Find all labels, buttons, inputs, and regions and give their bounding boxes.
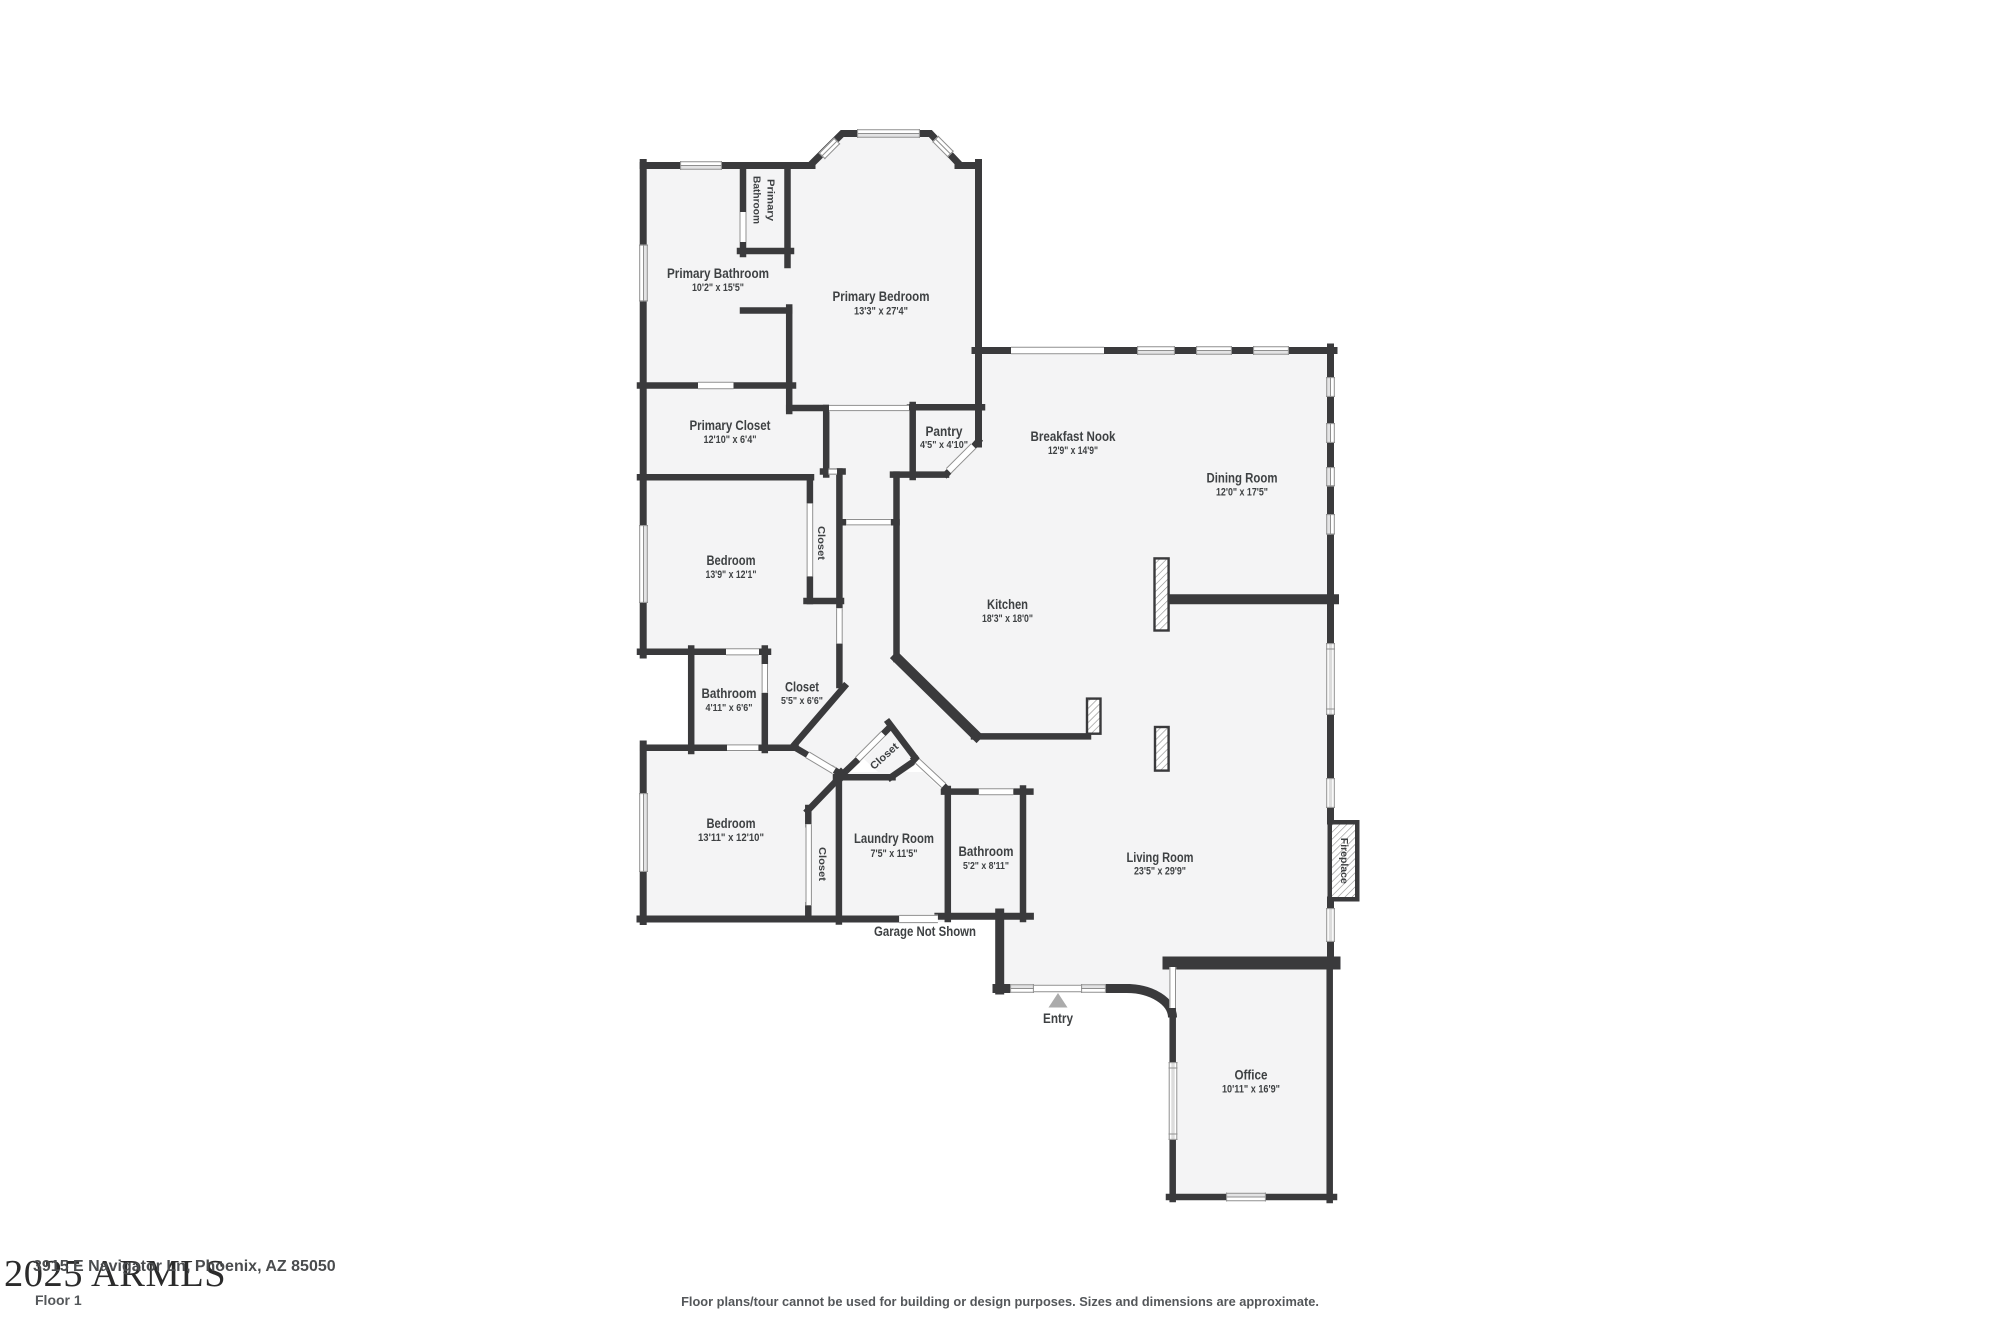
svg-text:10'2" x 15'5": 10'2" x 15'5": [692, 282, 744, 294]
svg-text:3915 E Navigator Ln, Phoenix,: 3915 E Navigator Ln, Phoenix, AZ 85050: [33, 1258, 336, 1275]
svg-text:23'5" x 29'9": 23'5" x 29'9": [1134, 866, 1186, 878]
svg-text:7'5" x 11'5": 7'5" x 11'5": [871, 848, 918, 860]
svg-text:Floor 1: Floor 1: [35, 1292, 82, 1308]
svg-text:18'3" x 18'0": 18'3" x 18'0": [982, 613, 1033, 625]
svg-text:10'11" x 16'9": 10'11" x 16'9": [1222, 1084, 1280, 1096]
svg-text:Garage Not Shown: Garage Not Shown: [874, 924, 976, 939]
svg-text:Office: Office: [1235, 1068, 1268, 1083]
svg-text:Dining Room: Dining Room: [1207, 471, 1278, 486]
svg-text:Entry: Entry: [1043, 1011, 1073, 1026]
svg-text:Primary Bathroom: Primary Bathroom: [667, 266, 769, 281]
svg-text:Bedroom: Bedroom: [707, 816, 756, 831]
svg-text:4'5" x 4'10": 4'5" x 4'10": [920, 440, 968, 451]
svg-text:Closet: Closet: [815, 526, 827, 561]
svg-text:Fireplace: Fireplace: [1338, 838, 1350, 884]
svg-text:Closet: Closet: [816, 847, 828, 882]
svg-text:13'9" x 12'1": 13'9" x 12'1": [706, 569, 757, 581]
svg-text:Closet: Closet: [785, 680, 819, 695]
svg-text:Bedroom: Bedroom: [707, 553, 756, 568]
svg-text:Bathroom: Bathroom: [702, 686, 757, 701]
svg-text:Bathroom: Bathroom: [751, 176, 763, 224]
svg-text:Breakfast Nook: Breakfast Nook: [1031, 429, 1116, 444]
svg-text:Primary Closet: Primary Closet: [690, 418, 771, 433]
svg-text:Living Room: Living Room: [1127, 850, 1194, 865]
svg-text:Primary Bedroom: Primary Bedroom: [833, 289, 930, 304]
svg-text:Bathroom: Bathroom: [959, 844, 1014, 859]
svg-text:13'3" x 27'4": 13'3" x 27'4": [854, 306, 908, 318]
svg-text:12'0" x 17'5": 12'0" x 17'5": [1216, 487, 1268, 499]
svg-text:Floor plans/tour cannot be use: Floor plans/tour cannot be used for buil…: [681, 1294, 1319, 1309]
svg-text:Kitchen: Kitchen: [987, 597, 1028, 612]
svg-text:13'11" x 12'10": 13'11" x 12'10": [698, 832, 764, 844]
svg-text:5'5" x 6'6": 5'5" x 6'6": [781, 696, 823, 707]
svg-text:4'11" x 6'6": 4'11" x 6'6": [706, 703, 753, 714]
svg-text:Primary: Primary: [765, 179, 777, 221]
svg-text:Laundry Room: Laundry Room: [854, 831, 934, 846]
svg-text:Pantry: Pantry: [926, 424, 963, 439]
svg-text:12'10" x 6'4": 12'10" x 6'4": [704, 434, 757, 446]
svg-text:5'2" x 8'11": 5'2" x 8'11": [963, 861, 1009, 872]
svg-text:12'9" x 14'9": 12'9" x 14'9": [1048, 445, 1098, 457]
